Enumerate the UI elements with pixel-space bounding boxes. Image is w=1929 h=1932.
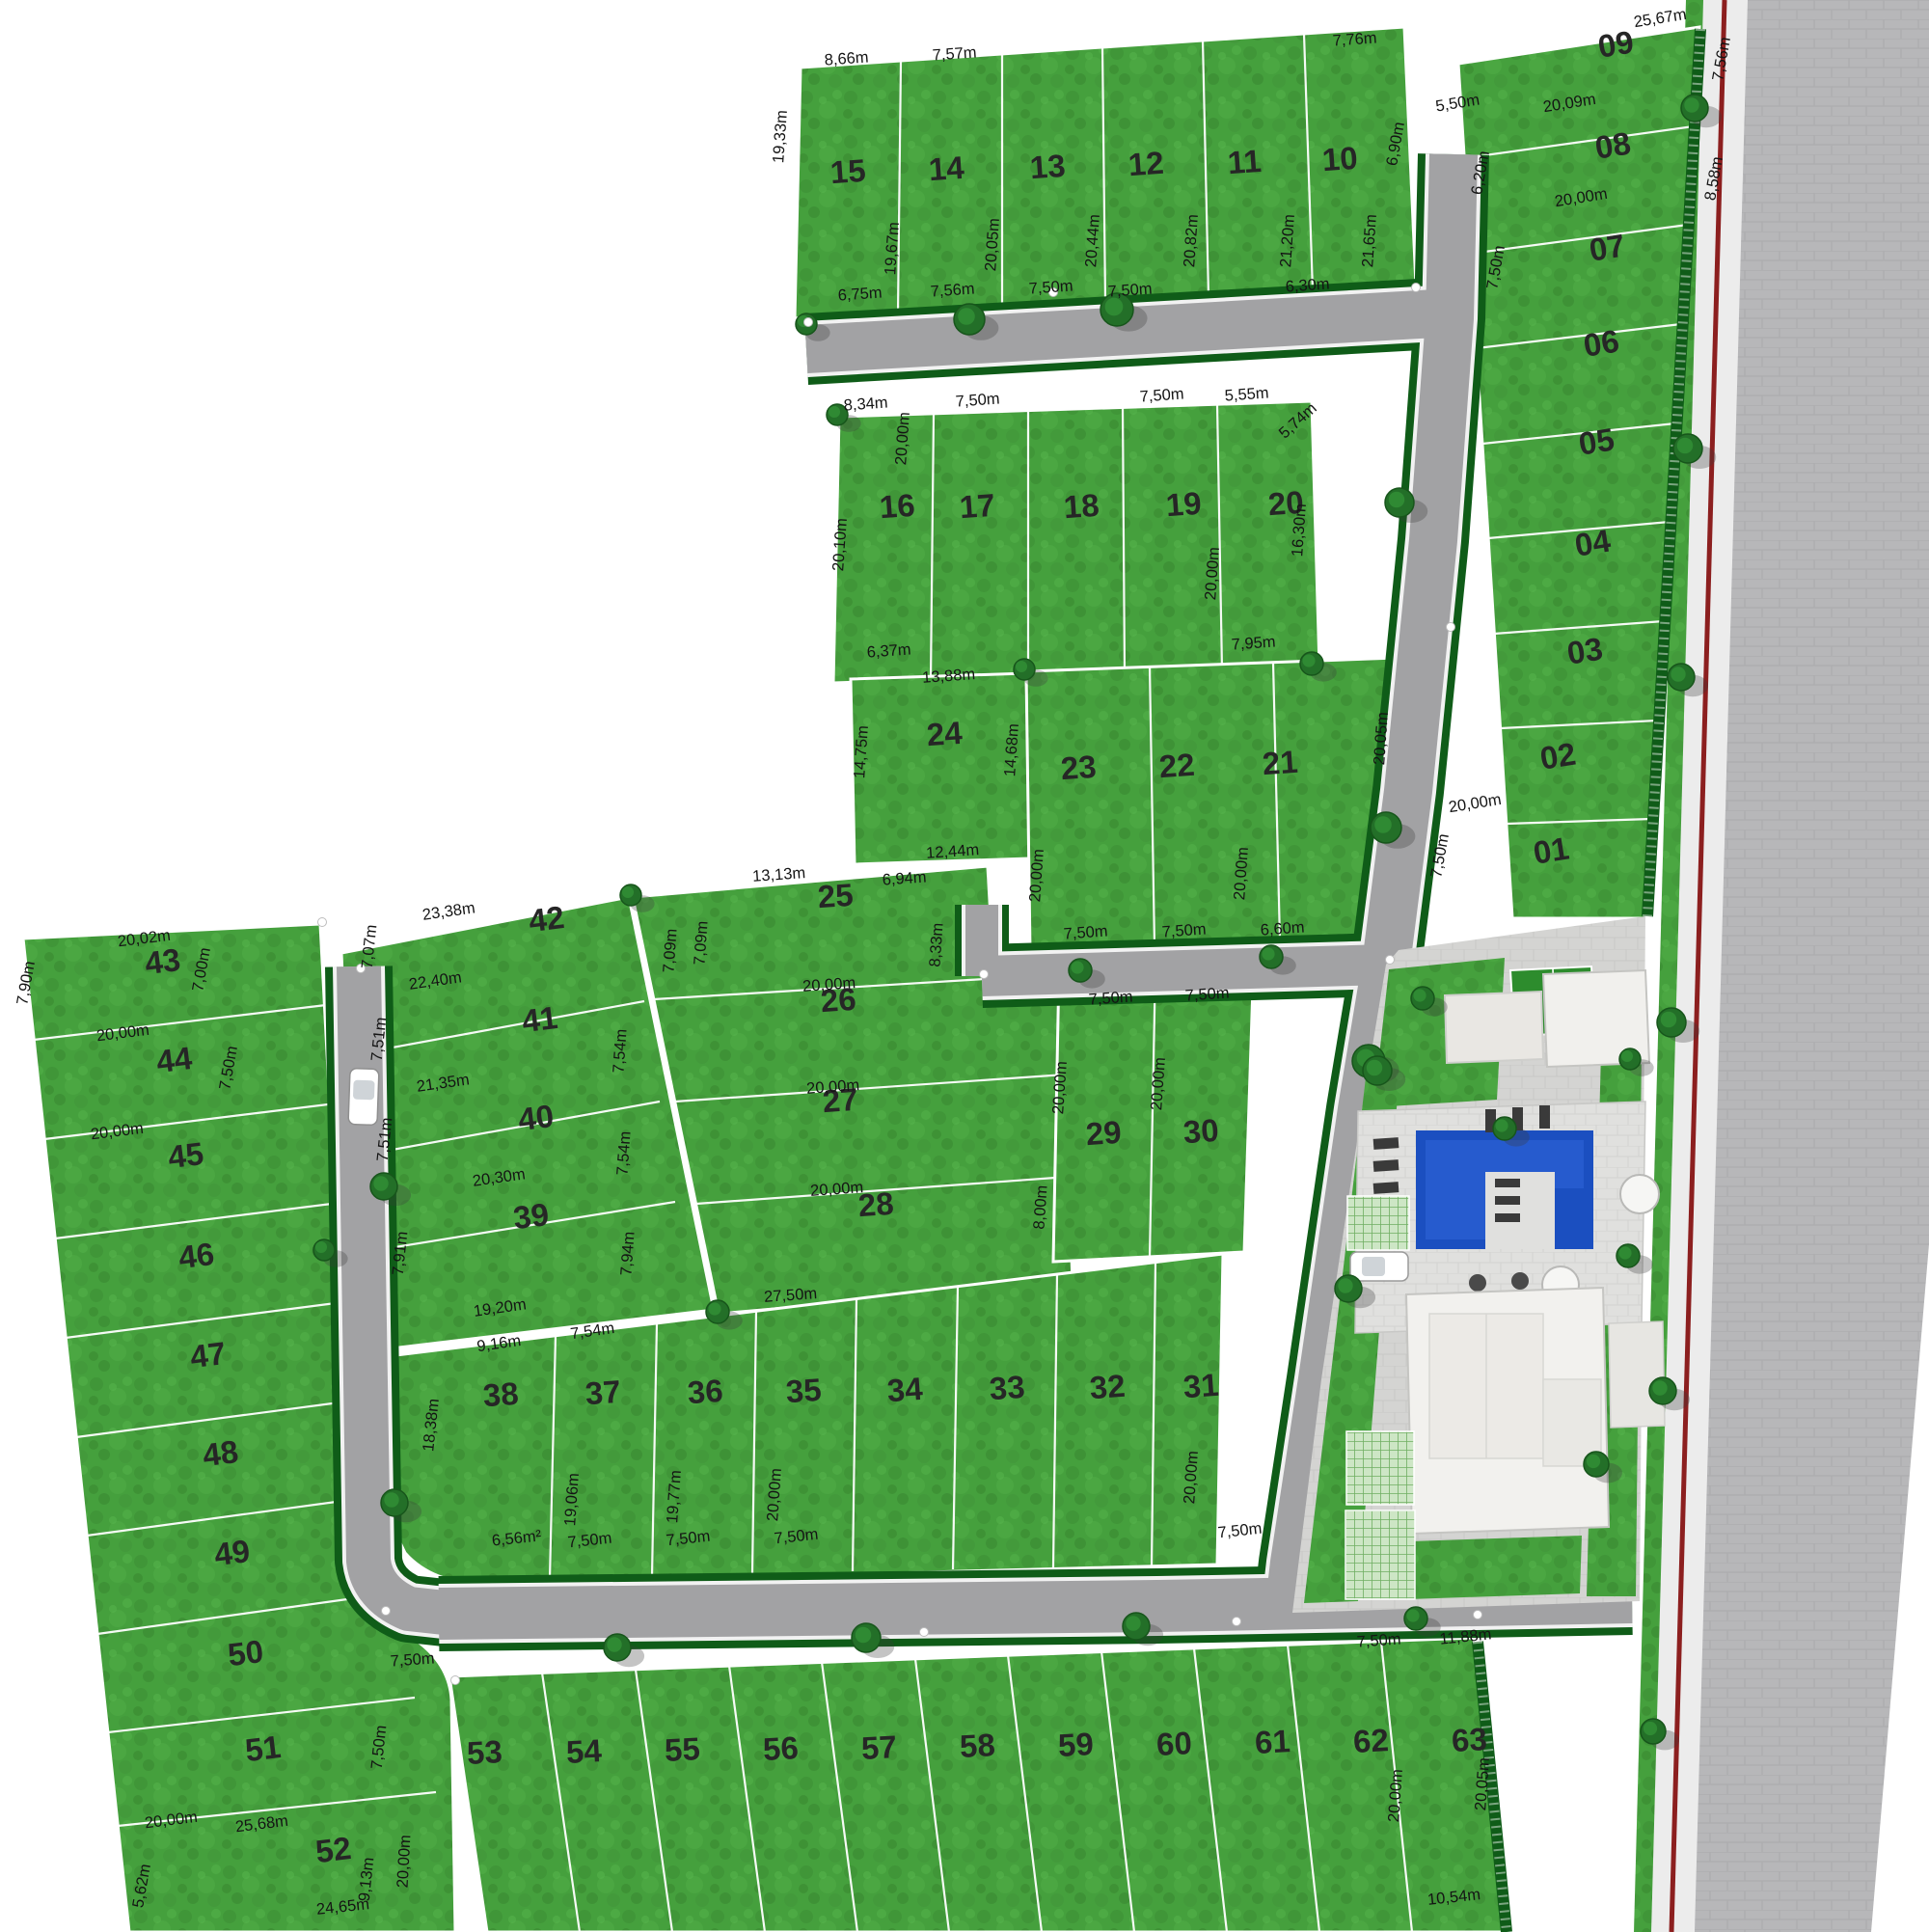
lot-number: 36 [687, 1373, 724, 1410]
lot-number: 62 [1352, 1722, 1390, 1759]
dimension-label: 7,09m [691, 920, 711, 966]
dimension-label: 16,30m [1289, 503, 1310, 558]
lot-number: 04 [1572, 522, 1614, 562]
survey-marker-dot [318, 918, 327, 927]
lot-number: 58 [959, 1727, 996, 1764]
dimension-label: 7,50m [1063, 922, 1108, 942]
dimension-label: 21,20m [1277, 214, 1298, 268]
dimension-label: 20,00m [1231, 847, 1252, 901]
lot-number: 33 [989, 1369, 1026, 1406]
lot-number: 57 [860, 1728, 898, 1766]
dimension-label: 20,00m [394, 1835, 415, 1889]
lot-number: 22 [1158, 747, 1196, 784]
dimension-label: 6,75m [837, 284, 883, 304]
survey-marker-dot [1474, 1611, 1482, 1619]
dimension-label: 7,50m [1356, 1630, 1401, 1650]
lot-number: 07 [1587, 227, 1627, 267]
dimension-label: 7,50m [1184, 984, 1230, 1004]
lot-number: 31 [1182, 1367, 1220, 1404]
lot-number: 18 [1063, 487, 1100, 525]
dimension-label: 7,50m [1217, 1520, 1263, 1542]
dimension-label: 20,00m [764, 1468, 785, 1522]
dimension-label: 7,54m [610, 1028, 630, 1074]
swimming-pool[interactable] [1416, 1130, 1593, 1249]
dimension-label: 20,00m [1181, 1451, 1202, 1505]
lot-number: 30 [1182, 1112, 1220, 1150]
dimension-label: 21,65m [1359, 214, 1380, 268]
lot-number: 17 [959, 487, 996, 525]
dimension-label: 27,50m [764, 1285, 818, 1306]
survey-marker-dot [382, 1607, 391, 1616]
dimension-label: 20,00m [1385, 1769, 1406, 1823]
lot-number: 14 [928, 150, 966, 188]
dimension-label: 20,00m [806, 1076, 860, 1098]
lot-number: 54 [565, 1732, 603, 1770]
lot-number: 05 [1576, 421, 1617, 461]
lot-number: 02 [1537, 735, 1578, 776]
survey-marker-dot [1447, 623, 1455, 632]
dimension-label: 7,50m [1107, 280, 1153, 300]
dimension-label: 20,00m [892, 412, 913, 466]
lot-number: 32 [1089, 1368, 1127, 1405]
dimension-label: 7,50m [1161, 920, 1207, 940]
dimension-label: 20,82m [1181, 214, 1202, 268]
dimension-label: 20,05m [982, 218, 1003, 272]
survey-marker-dot [980, 970, 989, 979]
dimension-label: 19,77m [664, 1470, 685, 1524]
lot-number: 24 [926, 715, 964, 753]
lot-number: 09 [1595, 23, 1636, 64]
dimension-label: 8,00m [1030, 1184, 1050, 1230]
dimension-label: 20,00m [1026, 849, 1047, 903]
dimension-label: 14,68m [1001, 723, 1022, 777]
survey-marker-dot [1233, 1618, 1241, 1626]
lot-number: 13 [1029, 148, 1067, 185]
lot-number: 01 [1531, 830, 1571, 870]
survey-marker-dot [804, 318, 813, 327]
parked-car [1350, 1252, 1408, 1281]
block-lots-53-63[interactable] [449, 1638, 1505, 1932]
survey-marker-dot [920, 1628, 929, 1637]
dimension-label: 7,50m [1139, 385, 1184, 405]
car-on-road [348, 1068, 379, 1125]
lot-number: 43 [143, 941, 182, 981]
dimension-label: 20,05m [1371, 712, 1392, 766]
dimension-label: 7,56m [930, 280, 975, 300]
lot-number: 63 [1451, 1721, 1488, 1758]
dimension-label: 7,50m [390, 1649, 435, 1670]
amenity-garden-bottom [1408, 1536, 1582, 1599]
lot-number: 47 [188, 1335, 228, 1374]
lot-number: 12 [1128, 145, 1165, 182]
dimension-label: 7,57m [932, 43, 977, 64]
lot-number: 60 [1155, 1725, 1193, 1762]
dimension-label: 8,34m [843, 394, 888, 414]
dimension-label: 7,95m [1231, 633, 1276, 653]
dimension-label: 8,66m [824, 48, 869, 68]
lot-number: 48 [201, 1433, 240, 1473]
lot-number: 61 [1254, 1723, 1291, 1760]
dimension-label: 7,54m [613, 1130, 634, 1176]
dimension-label: 6,60m [1260, 918, 1305, 939]
dimension-label: 20,00m [810, 1179, 864, 1200]
lot-number: 59 [1057, 1726, 1095, 1763]
lot-number: 52 [313, 1830, 353, 1869]
dimension-label: 13,13m [752, 864, 806, 885]
dimension-label: 8,33m [926, 922, 946, 967]
lot-number: 03 [1564, 630, 1605, 670]
lot-number: 55 [664, 1730, 701, 1768]
dimension-label: 6,37m [866, 640, 911, 661]
dimension-label: 7,50m [1028, 277, 1073, 297]
dimension-label: 20,44m [1082, 214, 1103, 268]
lot-number: 16 [879, 487, 916, 525]
block-lots-01-09[interactable] [1458, 27, 1699, 918]
dimension-label: 20,00m [1148, 1057, 1169, 1111]
lot-number: 08 [1592, 124, 1633, 165]
site-plan-canvas: 0102030405060708091011121314151617181920… [0, 0, 1929, 1932]
dimension-label: 7,76m [1332, 29, 1377, 49]
dimension-label: 6,94m [882, 868, 927, 888]
lot-number: 29 [1085, 1114, 1123, 1152]
lot-number: 06 [1581, 322, 1621, 363]
dimension-label: 5,55m [1224, 384, 1269, 404]
lot-number: 10 [1321, 140, 1359, 177]
lot-number: 15 [829, 152, 867, 190]
lot-number: 40 [516, 1098, 556, 1137]
lot-number: 56 [762, 1729, 800, 1767]
lot-number: 25 [817, 877, 855, 914]
survey-marker-dot [1386, 956, 1395, 965]
lot-number: 53 [466, 1733, 503, 1771]
dimension-label: 19,33m [770, 110, 791, 164]
dimension-label: 20,00m [1202, 547, 1223, 601]
lot-number: 21 [1262, 744, 1299, 781]
block-lots-21-23[interactable] [1026, 658, 1404, 951]
entrance-canopy [1445, 992, 1543, 1063]
dimension-label: 7,50m [1088, 988, 1133, 1008]
survey-marker-dot [451, 1676, 460, 1685]
lot-number: 19 [1165, 485, 1203, 523]
lot-number: 51 [243, 1728, 283, 1768]
lot-number: 41 [520, 999, 559, 1039]
lot-number: 23 [1060, 748, 1098, 786]
dimension-label: 20,00m [1049, 1061, 1071, 1115]
dimension-label: 14,75m [851, 725, 872, 779]
lot-number: 37 [584, 1374, 622, 1411]
dimension-label: 19,06m [561, 1473, 583, 1527]
lot-number: 46 [177, 1236, 216, 1275]
dimension-label: 6,30m [1285, 275, 1330, 295]
dimension-label: 20,10m [829, 518, 851, 572]
lot-number: 38 [482, 1375, 520, 1413]
lot-number: 35 [785, 1372, 823, 1409]
lot-number: 44 [154, 1040, 195, 1079]
dimension-label: 23,38m [421, 899, 476, 923]
lot-number: 39 [511, 1196, 551, 1236]
lot-number: 49 [212, 1533, 252, 1572]
dimension-label: 7,09m [660, 928, 680, 973]
dimension-label: 12,44m [926, 841, 980, 862]
dimension-label: 7,50m [955, 390, 1000, 410]
dimension-label: 20,00m [1448, 791, 1503, 816]
dimension-label: 13,88m [922, 666, 976, 687]
dimension-label: 20,00m [802, 974, 856, 995]
dimension-label: 25,67m [1633, 6, 1688, 31]
dimension-label: 20,05m [1472, 1757, 1493, 1811]
site-plan: 0102030405060708091011121314151617181920… [0, 0, 1929, 1932]
dimension-label: 7,94m [617, 1231, 638, 1276]
lot-number: 45 [166, 1135, 205, 1175]
lot-number: 11 [1227, 143, 1263, 180]
lot-number: 34 [886, 1371, 925, 1409]
lot-number: 42 [527, 899, 566, 939]
survey-marker-dot [1412, 284, 1421, 292]
dimension-label: 19,67m [882, 222, 903, 276]
lot-number: 50 [226, 1633, 265, 1673]
